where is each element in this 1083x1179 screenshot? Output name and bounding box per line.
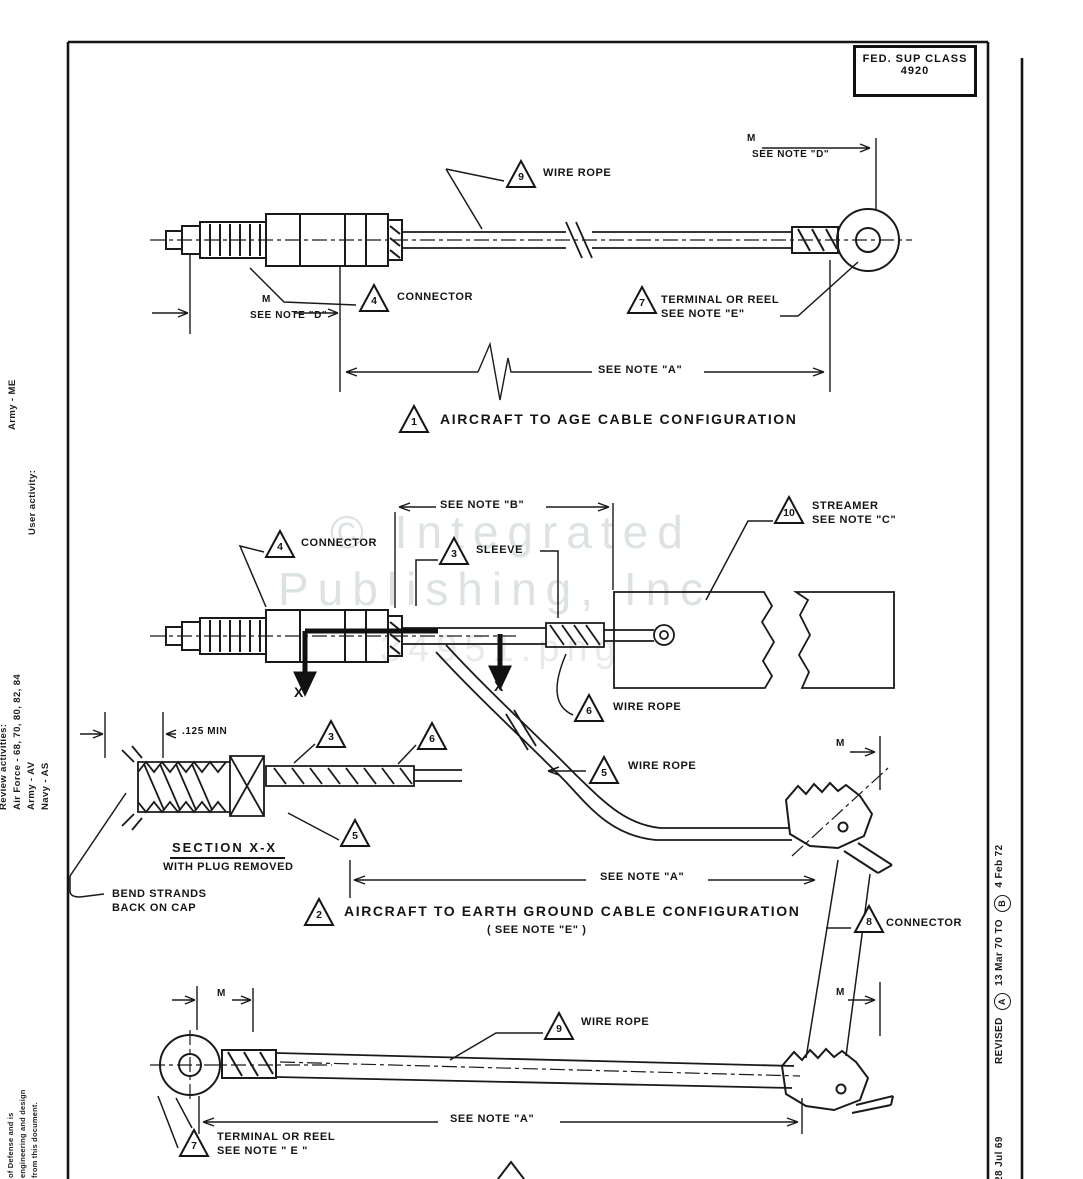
connector-label-config1: CONNECTOR — [397, 291, 473, 303]
callout-number: 1 — [397, 416, 431, 428]
centerlines — [150, 240, 912, 1102]
callout-wire-rope-upper-config2: 6 — [572, 692, 606, 724]
callout-number: 4 — [357, 295, 391, 307]
title-config1: AIRCRAFT TO AGE CABLE CONFIGURATION — [440, 411, 798, 427]
callout-terminal-config1: 7 — [625, 284, 659, 316]
config3-dimensions — [172, 982, 880, 1134]
see-note-b-config2: SEE NOTE "B" — [440, 499, 524, 511]
config2-rope-sleeve-streamer — [402, 592, 894, 688]
fsc-class-number: 4920 — [856, 65, 974, 77]
callout-title-config1: 1 — [397, 403, 431, 435]
callout-number: 5 — [587, 767, 621, 779]
wire-rope-upper-label-config2: WIRE ROPE — [613, 701, 681, 713]
m-dim-right-config1: M — [747, 133, 756, 144]
config3-wire-rope — [276, 1053, 794, 1088]
wire-rope-label-config1: WIRE ROPE — [543, 167, 611, 179]
revision-to-label: TO — [994, 919, 1005, 934]
config3-clamp — [782, 1049, 893, 1113]
review-activities-label: Review activities: — [0, 724, 9, 810]
user-activity-label: User activity: — [27, 470, 38, 535]
bend-strands-note-2: BACK ON CAP — [112, 902, 196, 914]
terminal-label-1-config3: TERMINAL OR REEL — [217, 1131, 335, 1143]
callout-connector-config1: 4 — [357, 282, 391, 314]
callout-number: 5 — [338, 830, 372, 842]
callout-sleeve-config2: 3 — [437, 535, 471, 567]
see-note-a-config2: SEE NOTE "A" — [600, 871, 684, 883]
bend-strands-note-1: BEND STRANDS — [112, 888, 207, 900]
review-navy: Navy - AS — [40, 762, 51, 810]
callout-wire-rope-config1: 9 — [504, 158, 538, 190]
callout-wire-rope-lower-config2: 5 — [587, 754, 621, 786]
callout-title-config2: 2 — [302, 896, 336, 928]
fine-print-3: from this document. — [30, 1102, 39, 1178]
streamer-label-1: STREAMER — [812, 500, 879, 512]
callout-streamer-config2: 10 — [772, 494, 806, 526]
subtitle-config2: ( SEE NOTE "E" ) — [487, 924, 587, 936]
callout-number: 7 — [177, 1140, 211, 1152]
review-army: Army - AV — [26, 762, 37, 810]
callout-number: 9 — [542, 1023, 576, 1035]
review-air-force: Air Force - 68, 70, 80, 82, 84 — [12, 674, 23, 810]
revision-b-date: 4 Feb 72 — [994, 844, 1005, 887]
callout-number: 3 — [437, 548, 471, 560]
callout-number: 9 — [504, 171, 538, 183]
config2-leaders — [240, 521, 870, 1058]
config2-connector — [166, 610, 402, 662]
revision-a-date: 13 Mar 70 — [994, 937, 1005, 986]
terminal-label-1-config1: TERMINAL OR REEL — [661, 294, 779, 306]
line-art — [0, 0, 1083, 1179]
terminal-label-2-config3: SEE NOTE " E " — [217, 1145, 308, 1157]
drawing-sheet: © Integrated Publishing, Inc 34951.png — [0, 0, 1083, 1179]
callout-number: 6 — [415, 733, 449, 745]
fsc-class-label: FED. SUP CLASS — [856, 53, 974, 65]
section-title: SECTION X-X — [170, 840, 285, 859]
revision-strip: REVISED A 13 Mar 70 TO B 4 Feb 72 — [994, 844, 1011, 1064]
section-dimensions — [80, 712, 176, 758]
min-dim-section: .125 MIN — [182, 726, 227, 737]
callout-sleeve-section: 3 — [314, 718, 348, 750]
drawing-date: 28 Jul 69 — [994, 1136, 1005, 1179]
m-dim-right-config2: M — [836, 738, 845, 749]
section-view — [122, 746, 462, 830]
callout-number: 4 — [263, 541, 297, 553]
connector-label-config2: CONNECTOR — [301, 537, 377, 549]
partial-callout-triangle — [498, 1162, 524, 1179]
callout-number: 7 — [625, 297, 659, 309]
frame-lines — [68, 42, 1022, 1179]
callout-connector-config2: 4 — [263, 528, 297, 560]
fsc-box: FED. SUP CLASS 4920 — [853, 45, 977, 97]
revision-a-symbol: A — [994, 993, 1011, 1010]
m-dim-right-config3: M — [836, 987, 845, 998]
callout-number: 6 — [572, 705, 606, 717]
m-dim-left-config3: M — [217, 988, 226, 999]
see-note-d-right-config1: SEE NOTE "D" — [752, 149, 829, 160]
section-x-mark-right: X — [494, 678, 503, 694]
callout-number: 10 — [772, 507, 806, 519]
callout-rope-a-section: 6 — [415, 720, 449, 752]
fine-print-2: engineering and design — [18, 1089, 27, 1178]
see-note-a-config1: SEE NOTE "A" — [598, 364, 682, 376]
revision-b-symbol: B — [994, 895, 1011, 912]
callout-number: 8 — [852, 916, 886, 928]
m-dim-left-config1: M — [262, 294, 271, 305]
callout-wire-rope-config3: 9 — [542, 1010, 576, 1042]
wire-rope-lower-label-config2: WIRE ROPE — [628, 760, 696, 772]
config1-connector — [166, 214, 402, 266]
callout-clamp-connector-config2: 8 — [852, 903, 886, 935]
section-x-mark-left: X — [294, 684, 303, 700]
revised-label: REVISED — [994, 1017, 1005, 1064]
see-note-d-left-config1: SEE NOTE "D" — [250, 310, 327, 321]
sleeve-label-config2: SLEEVE — [476, 544, 523, 556]
user-activity-value: Army - ME — [7, 379, 18, 430]
terminal-label-2-config1: SEE NOTE "E" — [661, 308, 745, 320]
section-subtitle: WITH PLUG REMOVED — [163, 861, 294, 873]
clamp-connector-label-config2: CONNECTOR — [886, 917, 962, 929]
streamer-label-2: SEE NOTE "C" — [812, 514, 896, 526]
fine-print-1: of Defense and is — [6, 1113, 15, 1179]
callout-number: 2 — [302, 909, 336, 921]
wire-rope-label-config3: WIRE ROPE — [581, 1016, 649, 1028]
see-note-a-config3: SEE NOTE "A" — [450, 1113, 534, 1125]
title-config2: AIRCRAFT TO EARTH GROUND CABLE CONFIGURA… — [344, 903, 800, 919]
callout-terminal-config3: 7 — [177, 1127, 211, 1159]
callout-rope-b-section: 5 — [338, 817, 372, 849]
callout-number: 3 — [314, 731, 348, 743]
config2-clamp — [786, 783, 892, 873]
